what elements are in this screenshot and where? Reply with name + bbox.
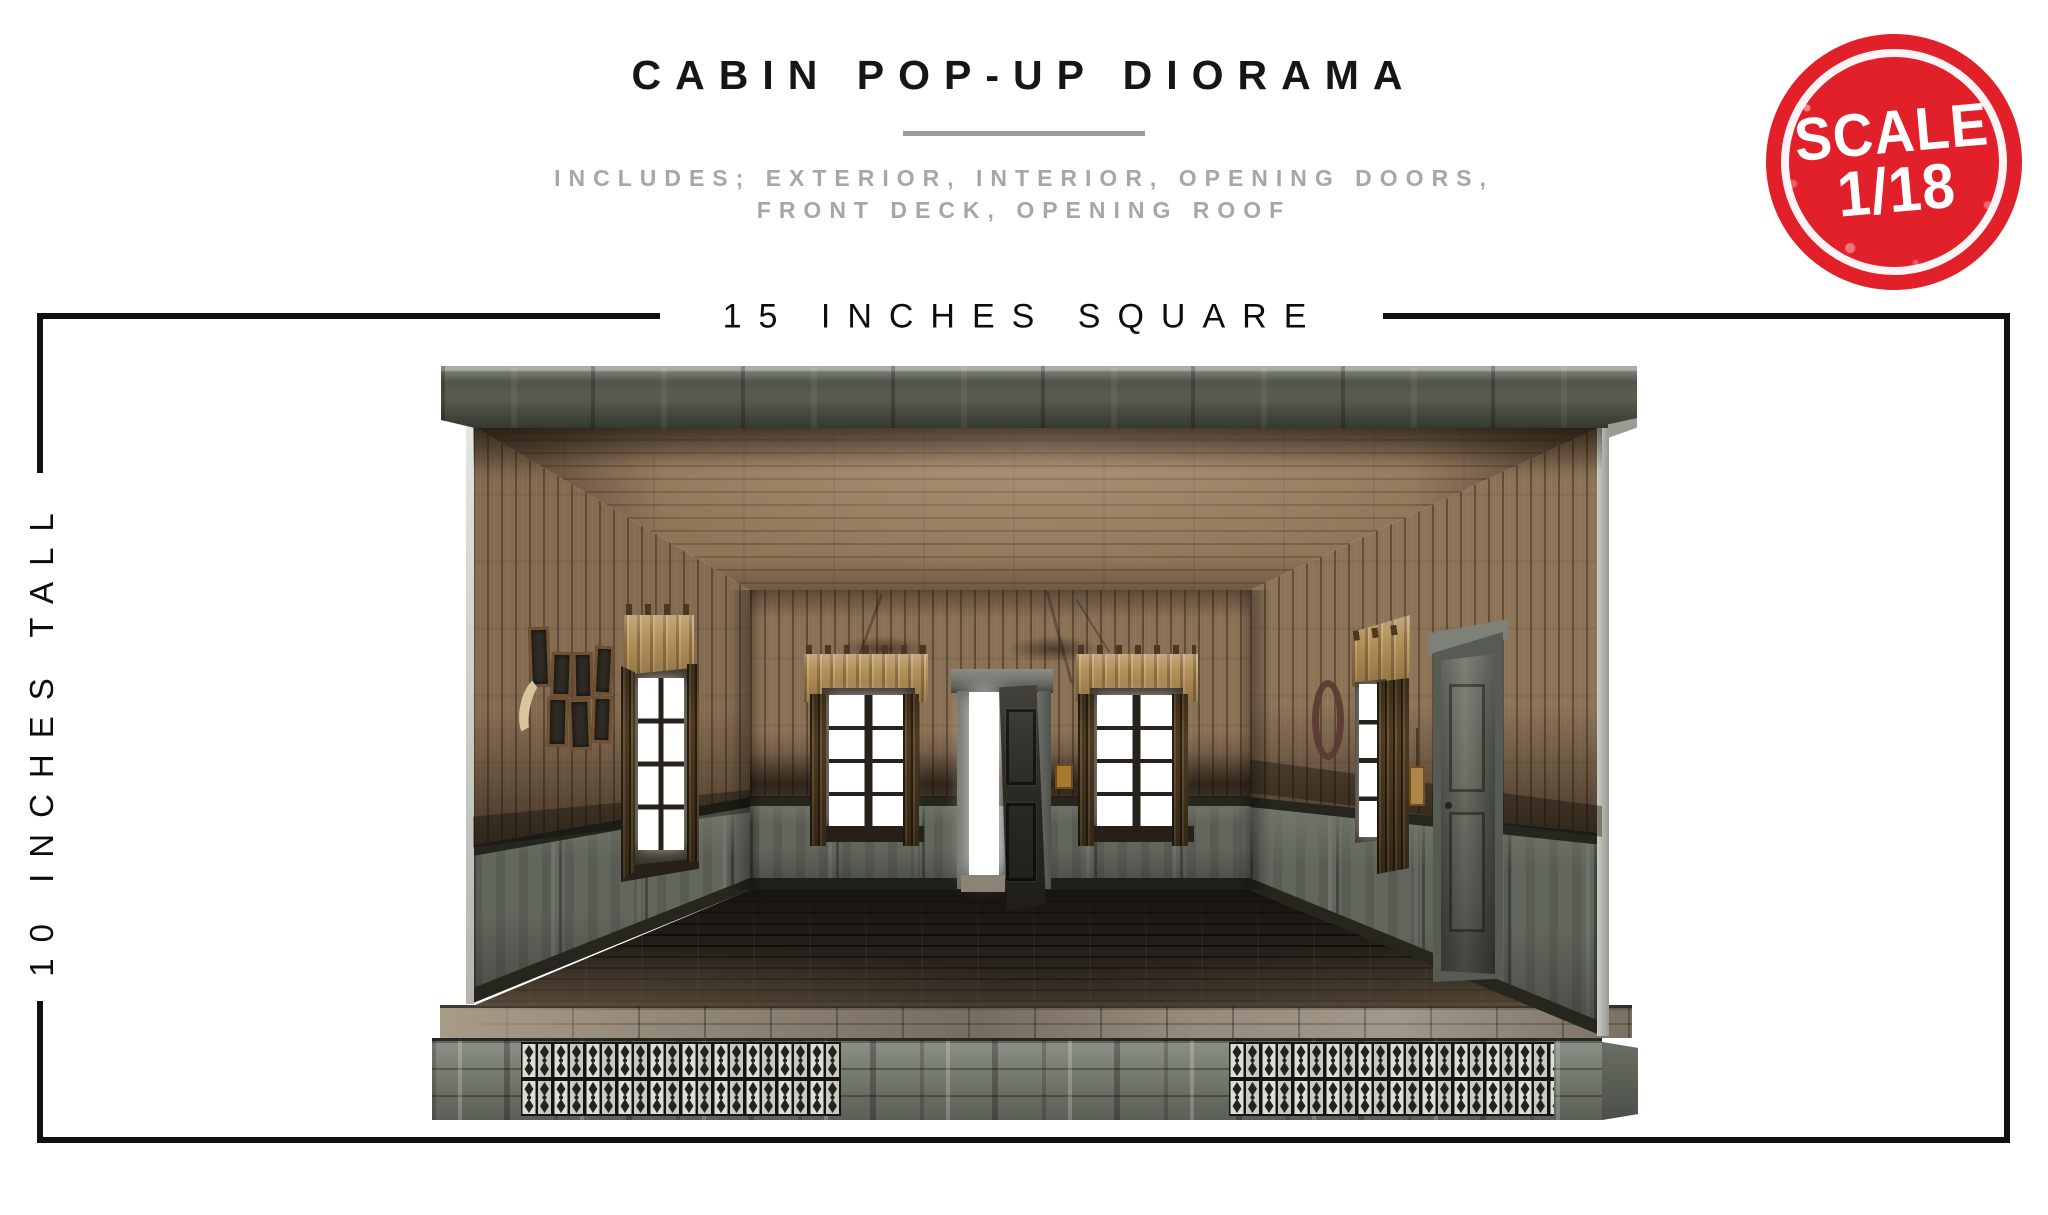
picture-frame <box>573 652 594 699</box>
curtain-back-right <box>1172 694 1188 846</box>
picture-frame <box>568 699 592 751</box>
door-panel <box>1449 684 1485 792</box>
curtain-back-right <box>1078 694 1094 846</box>
vent-screen-right <box>1229 1042 1554 1116</box>
dimension-line-left-lower <box>37 1001 43 1143</box>
curtain-back-left <box>903 694 919 846</box>
product-infographic: CABIN POP-UP DIORAMA INCLUDES; EXTERIOR,… <box>0 0 2048 1215</box>
door-panel <box>1006 709 1036 785</box>
window-panes <box>638 678 684 850</box>
window-panes <box>829 695 908 827</box>
doorway-threshold <box>961 875 1005 892</box>
wreath <box>1312 680 1344 760</box>
picture-frame <box>593 646 615 696</box>
subtitle-line-2: FRONT DECK, OPENING ROOF <box>0 197 2048 224</box>
window-back-left <box>822 688 915 834</box>
door-panel <box>1006 803 1036 881</box>
vent-screen-left <box>521 1042 841 1116</box>
roof-slab <box>441 366 1637 428</box>
dimension-line-right <box>2004 313 2010 1143</box>
dimension-line-top-right <box>1383 313 2010 319</box>
dimension-line-top-left <box>40 313 660 319</box>
scale-stamp: SCALE 1/18 <box>1755 23 2032 300</box>
title-divider <box>903 131 1145 136</box>
subtitle-line-1: INCLUDES; EXTERIOR, INTERIOR, OPENING DO… <box>0 165 2048 192</box>
dimension-line-bottom <box>37 1137 2010 1143</box>
hanging-cord <box>1416 728 1418 768</box>
dimension-line-left-upper <box>37 313 43 473</box>
window-left-wall <box>630 668 692 880</box>
door-knob <box>1445 802 1452 809</box>
curtain-left-wall <box>621 666 635 880</box>
height-dimension-label: 10 INCHES TALL <box>23 497 61 977</box>
right-wall-edge <box>1597 426 1609 1036</box>
picture-frame <box>591 696 613 744</box>
window-panes <box>1097 695 1176 827</box>
base-platform-side-face <box>1602 1042 1638 1120</box>
width-dimension-label: 15 INCHES SQUARE <box>723 298 1324 337</box>
curtain-right-wall <box>1377 678 1409 874</box>
hanging-pouch <box>1409 766 1425 806</box>
picture-frame <box>550 652 573 698</box>
right-wall-door <box>1441 654 1495 974</box>
door-panel <box>1449 812 1485 932</box>
left-wall-edge <box>466 426 474 1004</box>
page-title: CABIN POP-UP DIORAMA <box>0 52 2048 99</box>
wall-sign <box>1055 764 1073 789</box>
window-back-right <box>1090 688 1183 834</box>
curtain-left-wall <box>687 664 699 862</box>
curtain-back-left <box>810 694 826 846</box>
open-doorway <box>969 692 999 877</box>
front-deck <box>440 1005 1632 1038</box>
